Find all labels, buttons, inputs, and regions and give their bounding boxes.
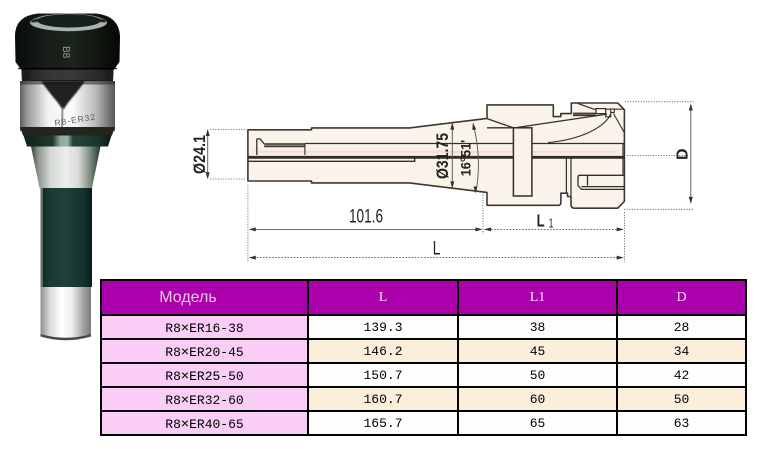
svg-text:B8: B8 bbox=[60, 46, 71, 59]
svg-text:D: D bbox=[675, 148, 692, 160]
svg-text:Ø24.1: Ø24.1 bbox=[190, 135, 209, 174]
svg-text:L: L bbox=[433, 239, 441, 260]
svg-text:16°51': 16°51' bbox=[458, 140, 474, 177]
svg-text:Ø31.75: Ø31.75 bbox=[433, 133, 452, 179]
svg-text:1: 1 bbox=[549, 216, 554, 230]
svg-text:101.6: 101.6 bbox=[349, 207, 383, 228]
svg-text:L: L bbox=[537, 210, 545, 230]
